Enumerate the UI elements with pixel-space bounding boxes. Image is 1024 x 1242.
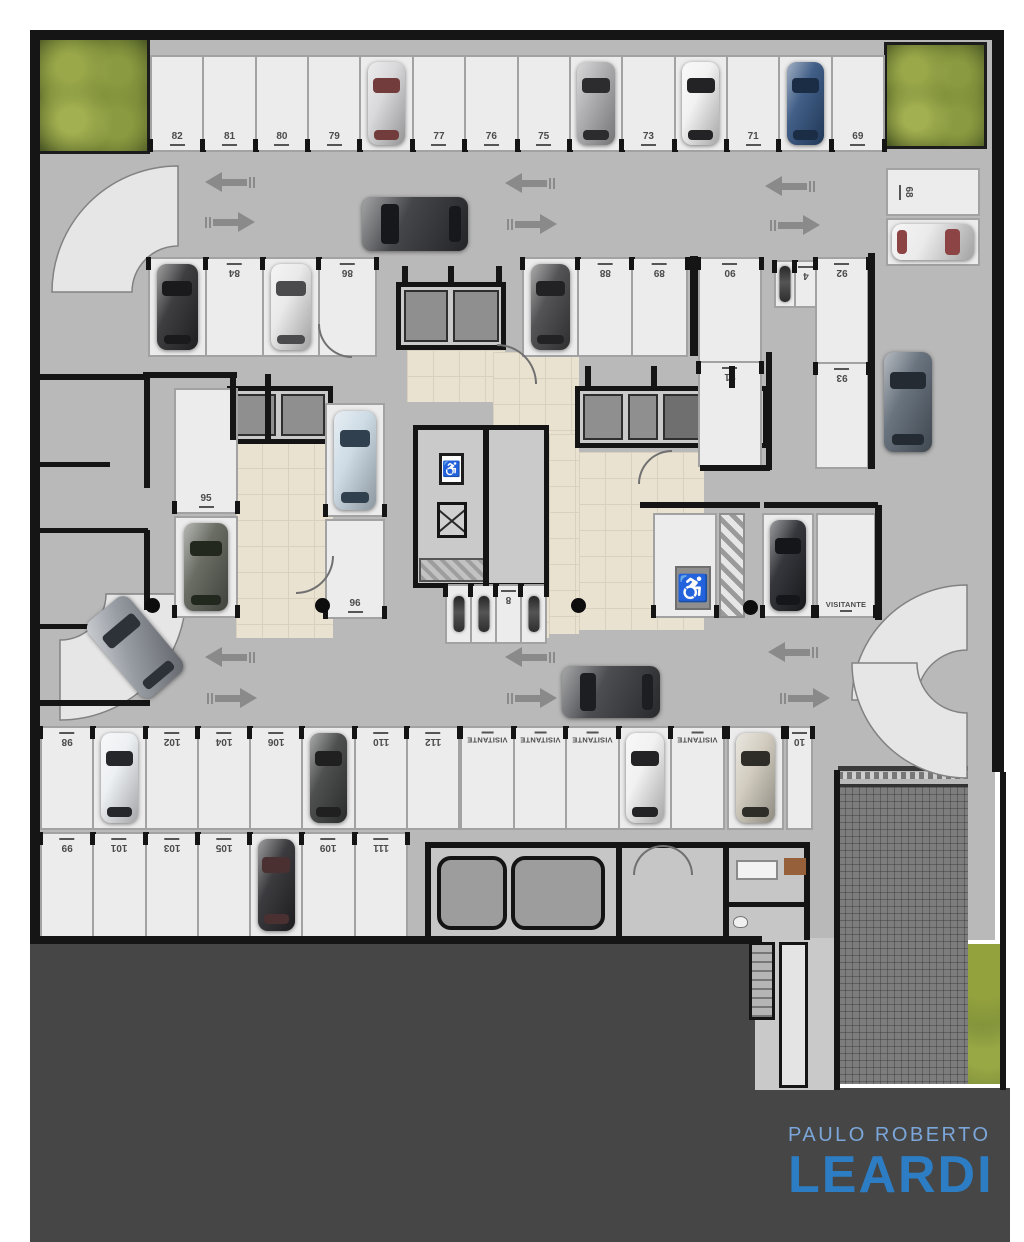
arrow-shaft (520, 654, 547, 661)
arrow-left (205, 647, 257, 667)
stall-10: 10 (788, 728, 811, 828)
stall-8: 8 (497, 586, 522, 642)
car (892, 224, 975, 260)
stall-111: 111 (356, 834, 406, 936)
stall-106: 106 (251, 728, 303, 828)
stall-VISITANTE: VISITANTE (672, 728, 723, 828)
no-parking-hatch (719, 513, 745, 618)
arrow-shaft (520, 180, 547, 187)
car (271, 264, 312, 350)
water-tank (437, 856, 507, 930)
structural-column (571, 598, 586, 613)
stall-number: VISITANTE (672, 732, 723, 744)
stall-number: 95 (176, 494, 236, 508)
car-windshield (582, 78, 610, 92)
brand-logo: PAULO ROBERTO LEARDI (788, 1124, 1010, 1201)
parking-floor-plan: PAULO ROBERTO LEARDI 8281807977767573716… (0, 0, 1024, 1242)
stall-number: 69 (833, 132, 883, 146)
wood-floor (784, 858, 806, 875)
storage-cell (404, 290, 448, 342)
car-windshield (945, 229, 959, 256)
motorcycle (780, 266, 791, 302)
arrow-right (203, 212, 255, 232)
stall-81: 81 (204, 57, 256, 150)
brand-name-main: LEARDI (788, 1149, 1010, 1201)
stall-110: 110 (356, 728, 408, 828)
car-rear-window (897, 230, 906, 255)
car-rear-window (776, 595, 800, 605)
motorcycle (453, 596, 464, 632)
car-rear-window (793, 130, 818, 139)
wall (1000, 772, 1006, 1090)
car-rear-window (264, 914, 289, 924)
car-windshield (580, 673, 597, 712)
arrow-shaft (780, 183, 807, 190)
stall-96a (325, 403, 385, 517)
car-rear-window (277, 335, 305, 345)
stall-number: 89 (633, 263, 686, 277)
moto-stalls-center: 8 (445, 584, 547, 644)
entry-gate (838, 766, 968, 771)
stall-number: VISITANTE (818, 601, 874, 613)
car-rear-window (449, 206, 461, 243)
stall-101: 101 (94, 834, 146, 936)
wall (868, 253, 875, 469)
row-bottom-upper: 98102104106110112 (40, 726, 460, 830)
car-windshield (741, 751, 770, 766)
car (682, 62, 719, 146)
stall-occupied (729, 728, 782, 828)
wall (36, 936, 762, 944)
motorcycle (528, 596, 539, 632)
stall-occupied (150, 259, 207, 355)
wall (496, 266, 502, 286)
car-rear-window (374, 130, 399, 139)
wall (585, 366, 591, 388)
car-rear-window (316, 807, 341, 817)
arrow-right (205, 688, 257, 708)
stall-79: 79 (309, 57, 361, 150)
car-windshield (190, 541, 223, 556)
car-windshield (101, 612, 142, 650)
stall-occupied (571, 57, 623, 150)
arrow-left (505, 173, 557, 193)
car-windshield (890, 372, 926, 389)
stall-96: 96 (325, 519, 385, 619)
arrow-right (768, 215, 820, 235)
car-windshield (775, 538, 801, 553)
sofa (736, 860, 778, 880)
wall (766, 352, 772, 470)
water-tank (511, 856, 605, 930)
ground-bottom-left (30, 944, 758, 1242)
wall (723, 846, 729, 938)
stall-occupied (780, 57, 832, 150)
stall-67-row (886, 218, 980, 266)
car-windshield (631, 751, 659, 766)
car (770, 520, 806, 611)
brand-name-top: PAULO ROBERTO (788, 1124, 1010, 1147)
stall-occupied (264, 259, 321, 355)
stall-69: 69 (833, 57, 883, 150)
stall-champagne (727, 726, 784, 830)
car-windshield (262, 857, 290, 873)
stall-77: 77 (414, 57, 466, 150)
car-rear-window (632, 807, 658, 817)
col-90-91: 9091 (698, 257, 762, 467)
stall-number: 8 (497, 590, 520, 604)
stall-number: 93 (817, 368, 867, 382)
wall (36, 700, 150, 706)
car (787, 62, 824, 146)
wall (700, 465, 770, 471)
stall-95b (174, 516, 238, 618)
arrow-right (505, 214, 557, 234)
car-windshield (276, 281, 306, 296)
stall-68: 68 (888, 170, 978, 214)
arrow-left (768, 642, 820, 662)
wall (875, 505, 882, 620)
stall-number: 105 (199, 838, 249, 852)
row-top: 82818079777675737169 (150, 55, 885, 152)
stall-visit: VISITANTE (816, 513, 876, 618)
car-rear-window (164, 335, 192, 345)
wall (143, 372, 237, 378)
arrow-shaft (788, 695, 815, 702)
motorcycle (478, 596, 489, 632)
vegetation-strip (968, 944, 1002, 1084)
toilet (733, 916, 748, 928)
stall-95: 95 (174, 388, 238, 514)
stall-103: 103 (147, 834, 199, 936)
col-92-93: 9293 (815, 257, 869, 469)
stall-number: 98 (42, 732, 92, 746)
wall (729, 366, 735, 388)
stall-10: 10 (786, 726, 813, 830)
stall-93: 93 (817, 364, 867, 467)
stall-number: 80 (257, 132, 307, 146)
arrow-shaft (778, 222, 805, 229)
wall (640, 502, 760, 508)
stall-number: 103 (147, 838, 197, 852)
moto-stall-4: 4 (774, 260, 818, 308)
stall-84: 84 (207, 259, 264, 355)
car-windshield (340, 430, 371, 447)
ramp-down (838, 784, 968, 1084)
car-rear-window (688, 130, 713, 139)
stall-92: 92 (817, 259, 867, 364)
arrow-left (765, 176, 817, 196)
wall (834, 770, 840, 1090)
stall-number: 71 (728, 132, 778, 146)
wall (723, 902, 810, 907)
stall-89: 89 (633, 259, 686, 355)
stall-number: 102 (147, 732, 197, 746)
stall-number: 68 (899, 172, 913, 212)
stall-number: 96 (327, 599, 383, 613)
car-rear-window (583, 130, 608, 139)
stall-71: 71 (728, 57, 780, 150)
stall-occupied (764, 515, 812, 616)
elevator-wheelchair-icon: ♿ (439, 453, 464, 485)
stall-number: 110 (356, 732, 406, 746)
entry-gate-dashes (838, 772, 968, 779)
wall (616, 846, 622, 938)
stall-VISITANTE: VISITANTE (462, 728, 515, 828)
car-windshield (162, 281, 192, 296)
stall-occupied (176, 518, 236, 616)
stall-number: 73 (623, 132, 673, 146)
stall-82: 82 (152, 57, 204, 150)
structural-column (315, 598, 330, 613)
wall (265, 374, 271, 440)
wall (992, 30, 1004, 772)
stall-number: 90 (700, 263, 760, 277)
wall (690, 256, 698, 356)
stall-number: 111 (356, 838, 406, 852)
wall (36, 462, 110, 467)
elevator-cab (281, 394, 325, 436)
stall-73: 73 (623, 57, 675, 150)
car-rear-window (107, 807, 132, 817)
elevator-cab (628, 394, 658, 440)
stair-shaft (437, 502, 467, 538)
stall-number: 109 (303, 838, 353, 852)
car-aisle-top (362, 197, 468, 251)
stall-75: 75 (519, 57, 571, 150)
car (157, 264, 198, 350)
stall-number: 84 (207, 263, 262, 277)
arrow-shaft (515, 221, 542, 228)
row-mid-center: 8889 (522, 257, 688, 357)
car-lane-right (884, 352, 932, 452)
service-corridor (779, 942, 808, 1088)
car (184, 523, 228, 611)
stall-number: 79 (309, 132, 359, 146)
stall-visit-car (762, 513, 814, 618)
arrow-shaft (220, 179, 247, 186)
car-rear-window (642, 674, 653, 709)
stall-occupied (361, 57, 413, 150)
car-rear-window (537, 335, 564, 345)
stall-number: 86 (320, 263, 375, 277)
wall (144, 374, 150, 488)
stall-109: 109 (303, 834, 355, 936)
stall-number: 92 (817, 263, 867, 277)
stall-occupied (327, 405, 383, 515)
stall-occupied (251, 834, 303, 936)
arrow-shaft (215, 695, 242, 702)
planter-top-right (884, 42, 987, 149)
car (368, 62, 405, 146)
stall (522, 586, 545, 642)
stall-96: 96 (327, 521, 383, 617)
wheelchair-icon: ♿ (675, 566, 711, 610)
wall (30, 30, 40, 944)
car-rear-window (742, 807, 769, 817)
stall-68-row: 68 (886, 168, 980, 216)
stall-number: 106 (251, 732, 301, 746)
stall-76: 76 (466, 57, 518, 150)
stall-99: 99 (42, 834, 94, 936)
stall-number: 75 (519, 132, 569, 146)
stall-number: 81 (204, 132, 254, 146)
stall-VISITANTE: VISITANTE (567, 728, 620, 828)
car-aisle-bottom (562, 666, 660, 718)
storage-cell (453, 290, 499, 342)
stall-number: 101 (94, 838, 144, 852)
stall-number: 77 (414, 132, 464, 146)
lobby-center-top (407, 350, 505, 402)
stall-occupied (676, 57, 728, 150)
car-windshield (792, 78, 820, 92)
car (626, 733, 663, 823)
stall-occupied (303, 728, 355, 828)
arrow-right (778, 688, 830, 708)
wall (448, 266, 454, 286)
stall-number: 99 (42, 838, 92, 852)
stall-number: VISITANTE (462, 732, 513, 744)
planter-top-left (37, 37, 150, 154)
stall-80: 80 (257, 57, 309, 150)
row-visitantes: VISITANTEVISITANTEVISITANTEVISITANTE (460, 726, 725, 830)
elevator-cab (583, 394, 623, 440)
wall (36, 528, 148, 533)
wall (36, 374, 148, 380)
stall-occupied (888, 220, 978, 264)
car-windshield (536, 281, 565, 296)
stall-VISITANTE: VISITANTE (818, 515, 874, 616)
stall-104: 104 (199, 728, 251, 828)
car (577, 62, 614, 146)
stall-90: 90 (700, 259, 760, 363)
car (334, 411, 375, 510)
stall-number: 10 (788, 732, 811, 746)
car-windshield (106, 751, 134, 766)
stall-number: VISITANTE (515, 732, 566, 744)
wall (30, 30, 1004, 40)
stall-VISITANTE: VISITANTE (515, 728, 568, 828)
stairs-down (749, 942, 775, 1020)
stall-number: 112 (408, 732, 458, 746)
car-rear-window (892, 434, 925, 445)
structural-column (145, 598, 160, 613)
stall-occupied (620, 728, 673, 828)
car (531, 264, 570, 350)
stall-88: 88 (579, 259, 634, 355)
stall-95: 95 (176, 390, 236, 512)
wall (402, 266, 408, 286)
stall-number: 88 (579, 263, 632, 277)
car (310, 733, 347, 823)
car (101, 733, 138, 823)
wall (764, 502, 878, 508)
stall-occupied (94, 728, 146, 828)
wall (230, 374, 236, 440)
arrow-shaft (213, 219, 240, 226)
row-bottom-lower: 99101103105109111 (40, 832, 408, 938)
car-windshield (381, 204, 399, 244)
stall-number: 104 (199, 732, 249, 746)
car-windshield (687, 78, 715, 92)
stall-112: 112 (408, 728, 458, 828)
arrow-shaft (783, 649, 810, 656)
arrow-left (505, 647, 557, 667)
wall (651, 366, 657, 388)
stall-number: 82 (152, 132, 202, 146)
machine-hatch (419, 558, 485, 582)
car (258, 839, 295, 931)
stall-105: 105 (199, 834, 251, 936)
structural-column (743, 600, 758, 615)
car-rear-window (191, 595, 221, 605)
stall-number: VISITANTE (567, 732, 618, 744)
arrow-shaft (220, 654, 247, 661)
car-windshield (373, 78, 401, 92)
stall-102: 102 (147, 728, 199, 828)
car-rear-window (341, 492, 369, 503)
arrow-right (505, 688, 557, 708)
stall-occupied (524, 259, 579, 355)
arrow-left (205, 172, 257, 192)
stall-98: 98 (42, 728, 94, 828)
car-windshield (315, 751, 343, 766)
arrow-shaft (515, 695, 542, 702)
stall-number: 76 (466, 132, 516, 146)
wall (483, 428, 489, 586)
car (736, 733, 775, 823)
